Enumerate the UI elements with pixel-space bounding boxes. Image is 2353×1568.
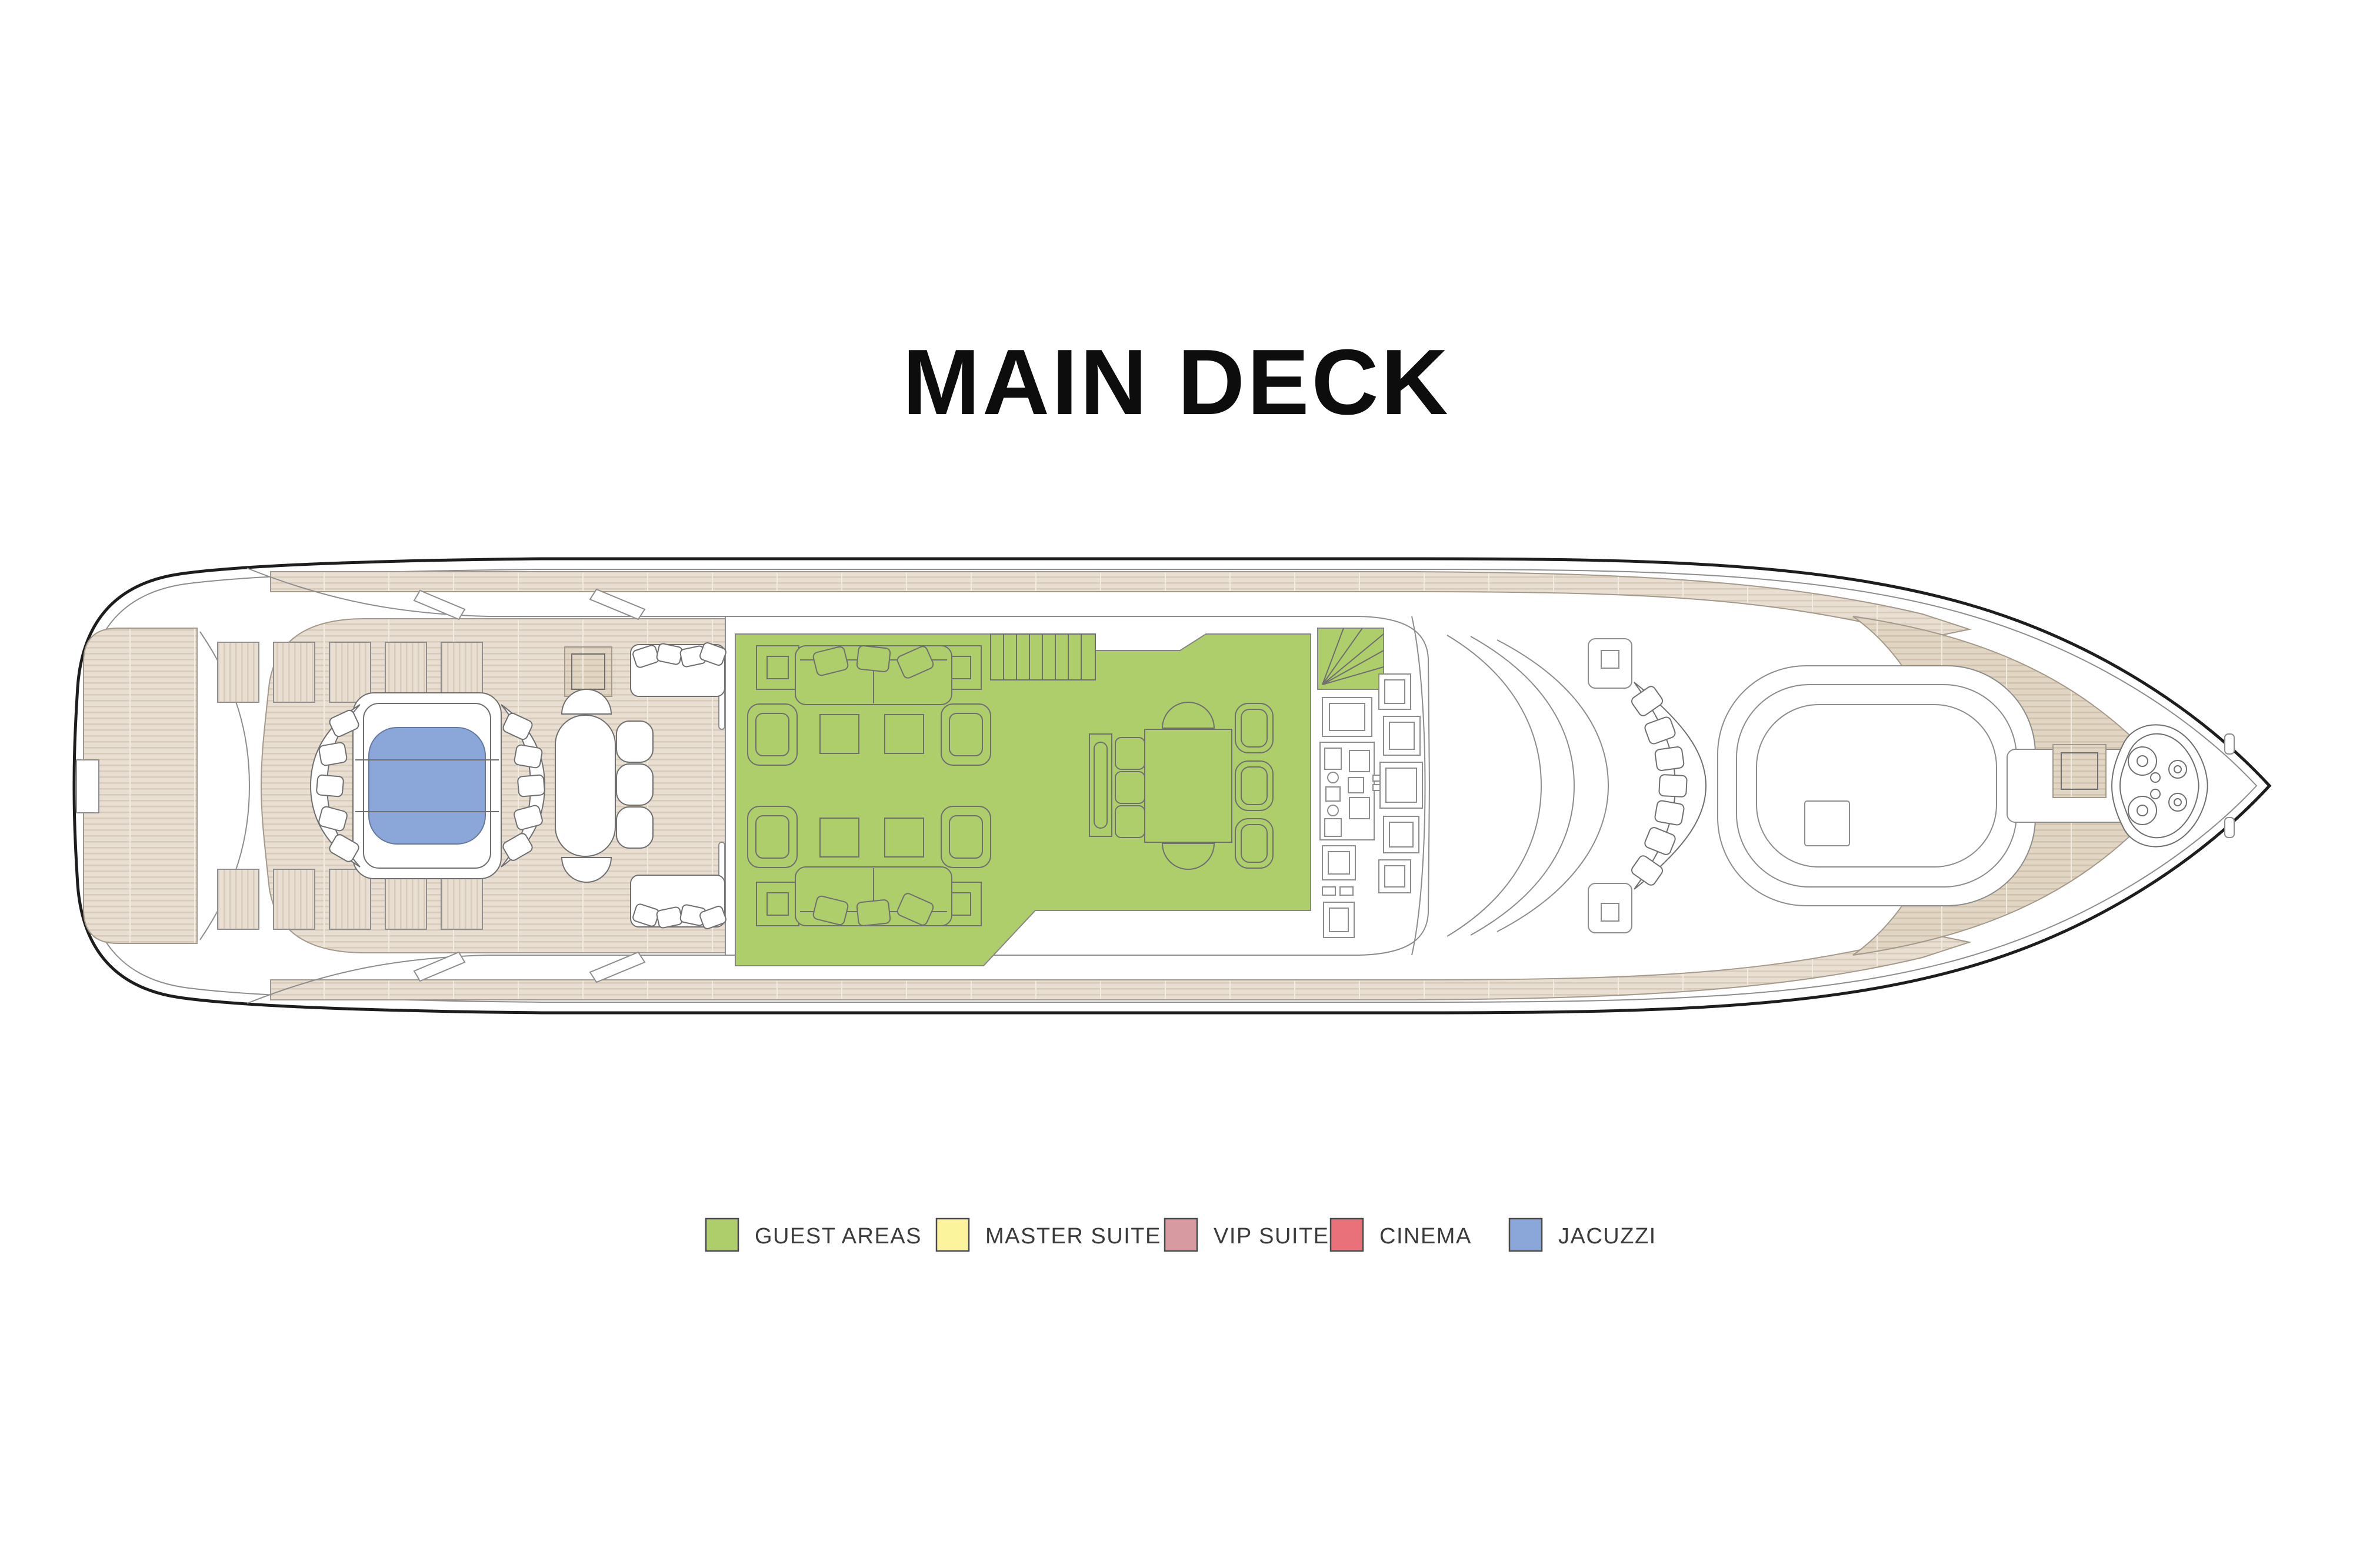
- transom-gate: [76, 760, 99, 813]
- dining-chair: [1115, 772, 1145, 803]
- jacuzzi-pool: [369, 728, 485, 844]
- galley-unit: [1322, 846, 1355, 880]
- dining-chair: [1115, 806, 1145, 838]
- pillow: [318, 742, 347, 766]
- bow-cleat: [2225, 734, 2234, 754]
- legend-item-vip-suite: VIP SUITE: [1165, 1219, 1329, 1251]
- legend-swatch-cinema: [1331, 1219, 1363, 1251]
- legend-swatch-jacuzzi: [1509, 1219, 1542, 1251]
- legend-label-cinema: CINEMA: [1379, 1224, 1472, 1249]
- aft-bench-top: [631, 642, 727, 696]
- aft-chair: [616, 764, 653, 805]
- aft-oval-table: [555, 715, 615, 856]
- aft-bench-bottom: [631, 875, 727, 930]
- legend-label-vip-suite: VIP SUITE: [1214, 1224, 1329, 1249]
- legend-item-guest-areas: GUEST AREAS: [706, 1219, 922, 1251]
- foredeck-side-table: [1588, 883, 1632, 933]
- galley-unit: [1326, 787, 1340, 801]
- legend-item-master-suite: MASTER SUITE: [936, 1219, 1161, 1251]
- legend-label-guest-areas: GUEST AREAS: [755, 1224, 922, 1249]
- galley-unit: [1340, 887, 1353, 895]
- dining-chair: [1235, 761, 1273, 810]
- pillow: [1654, 800, 1685, 825]
- coffee-table: [885, 818, 924, 857]
- galley-fixture: [1328, 772, 1338, 783]
- galley-unit: [1373, 785, 1380, 790]
- swim-platform: [84, 628, 197, 943]
- legend-label-jacuzzi: JACUZZI: [1558, 1224, 1657, 1249]
- galley-unit: [1325, 819, 1341, 836]
- legend-swatch-master-suite: [936, 1219, 969, 1251]
- salon-armchair: [941, 806, 991, 868]
- jacuzzi-platform: [353, 693, 501, 879]
- locker-slat: [329, 642, 371, 702]
- legend-label-master-suite: MASTER SUITE: [985, 1224, 1161, 1249]
- galley-unit: [1348, 778, 1364, 793]
- legend-swatch-guest-areas: [706, 1219, 738, 1251]
- galley-unit: [1322, 887, 1335, 895]
- pillow: [1655, 746, 1685, 771]
- pillow: [518, 775, 545, 797]
- galley-unit: [1349, 750, 1369, 772]
- locker-slat: [218, 642, 259, 702]
- dining-chair: [1235, 703, 1273, 753]
- pillow: [316, 775, 344, 797]
- dining-chair: [1115, 738, 1145, 769]
- pillow: [856, 645, 891, 672]
- aft-chair: [616, 721, 653, 762]
- pillow: [514, 744, 542, 768]
- coffee-table: [820, 818, 859, 857]
- dining-chair: [1235, 819, 1273, 868]
- coffee-table: [885, 715, 924, 753]
- galley-cabinet: [1379, 860, 1411, 893]
- legend: GUEST AREAS MASTER SUITE VIP SUITE CINEM…: [706, 1219, 1657, 1251]
- legend-item-jacuzzi: JACUZZI: [1509, 1219, 1657, 1251]
- sideboard: [1089, 734, 1112, 836]
- salon-side-table: [756, 646, 799, 689]
- salon-sofa-top: [795, 645, 952, 705]
- galley-unit: [1349, 798, 1369, 819]
- main-deck-plan: GUEST AREAS MASTER SUITE VIP SUITE CINEM…: [0, 0, 2353, 1568]
- locker-slat: [274, 642, 315, 702]
- galley-unit: [1325, 748, 1341, 769]
- foredeck-side-table: [1588, 639, 1632, 688]
- legend-swatch-vip-suite: [1165, 1219, 1197, 1251]
- pillow: [856, 899, 891, 926]
- locker-slat: [329, 869, 371, 929]
- locker-slat: [218, 869, 259, 929]
- aft-chair: [616, 807, 653, 848]
- pillow: [1659, 775, 1687, 797]
- dining-table: [1145, 729, 1232, 842]
- bow-cleat: [2225, 818, 2234, 838]
- locker-slat: [274, 869, 315, 929]
- bow-hatch: [2053, 745, 2106, 798]
- salon-armchair: [748, 806, 797, 868]
- sun-pad: [1718, 666, 2035, 906]
- coffee-table: [820, 715, 859, 753]
- salon-sofa-bottom: [795, 867, 952, 926]
- galley-fixture: [1328, 805, 1338, 816]
- legend-item-cinema: CINEMA: [1331, 1219, 1472, 1251]
- galley-unit: [1373, 775, 1380, 781]
- spiral-staircase: [1318, 628, 1384, 689]
- salon-armchair: [748, 704, 797, 765]
- salon-side-table: [756, 882, 799, 926]
- salon-armchair: [941, 704, 991, 765]
